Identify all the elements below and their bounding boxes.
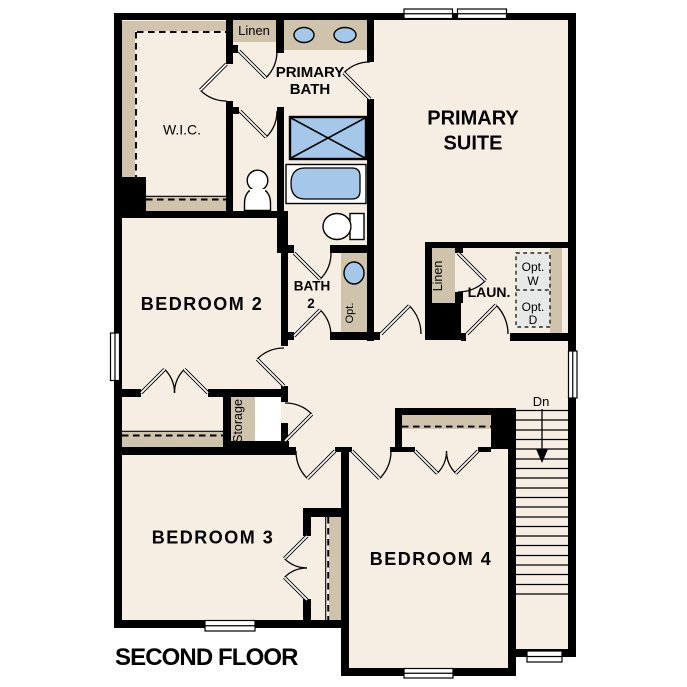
svg-text:PRIMARY: PRIMARY <box>276 64 345 81</box>
svg-text:Opt.: Opt. <box>522 260 545 274</box>
svg-text:Opt.: Opt. <box>522 300 545 314</box>
svg-text:2: 2 <box>307 296 315 311</box>
svg-text:LAUN.: LAUN. <box>468 284 511 300</box>
svg-text:BATH: BATH <box>294 279 331 294</box>
svg-text:BEDROOM 3: BEDROOM 3 <box>152 528 275 548</box>
svg-text:BEDROOM 4: BEDROOM 4 <box>370 549 493 569</box>
svg-text:PRIMARY: PRIMARY <box>427 108 519 130</box>
svg-text:BEDROOM 2: BEDROOM 2 <box>141 294 264 314</box>
svg-text:SECOND FLOOR: SECOND FLOOR <box>115 644 298 671</box>
svg-text:D: D <box>529 313 538 327</box>
svg-text:Storage: Storage <box>231 399 245 443</box>
svg-text:Linen: Linen <box>238 23 270 38</box>
svg-text:SUITE: SUITE <box>444 133 503 155</box>
svg-text:Dn: Dn <box>533 394 550 409</box>
svg-text:BATH: BATH <box>290 81 331 98</box>
svg-text:Opt.: Opt. <box>344 303 356 324</box>
svg-text:Linen: Linen <box>431 261 445 292</box>
svg-text:W: W <box>527 274 539 288</box>
svg-text:W.I.C.: W.I.C. <box>163 122 201 138</box>
